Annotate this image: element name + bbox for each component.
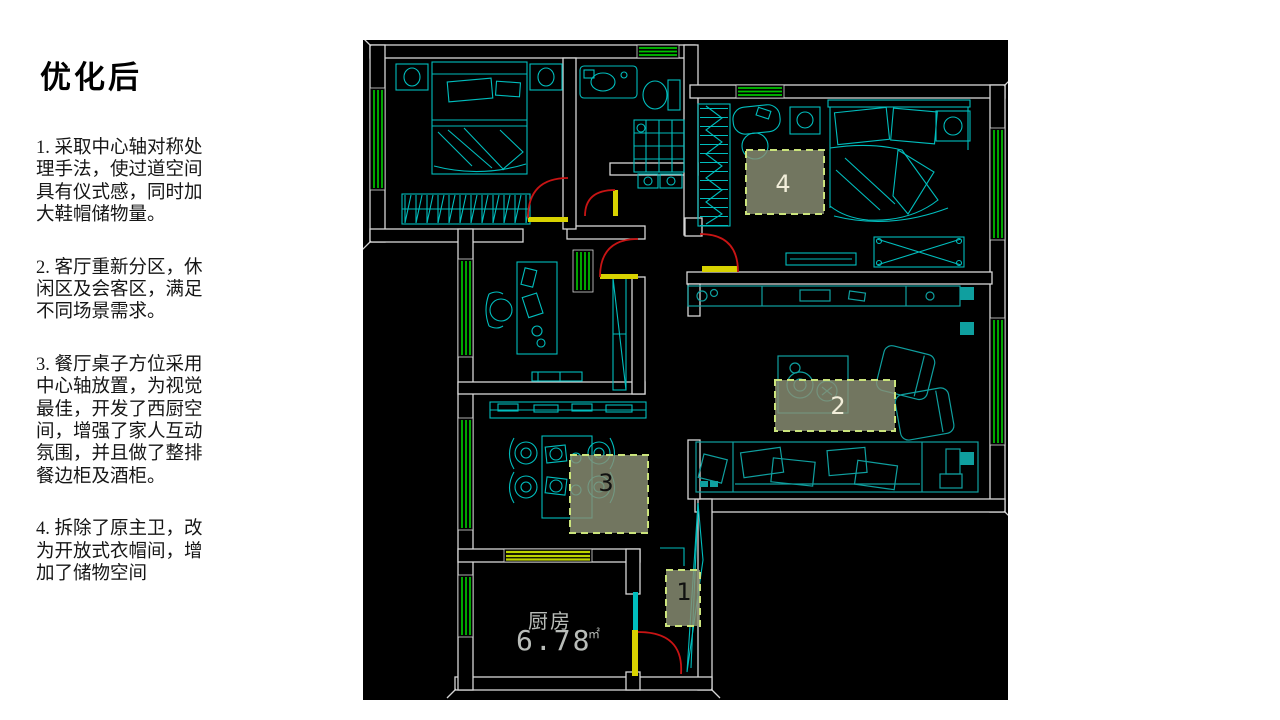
door-master-bedroom: [700, 234, 738, 272]
desk-chair: [486, 292, 512, 328]
box-label-4: 4: [775, 170, 790, 198]
dining-chair: [510, 472, 538, 503]
highlight-box-3: 3: [570, 455, 648, 533]
notes-panel: 优化后 1. 采取中心轴对称处 理手法，使过道空间 具有仪式感，同时加 大鞋帽储…: [36, 52, 248, 616]
box-label-3: 3: [598, 469, 613, 497]
sofa: [696, 442, 978, 492]
window-study-left: [458, 259, 473, 357]
window-bathroom-top: [637, 45, 679, 58]
floor-plan: 厨房 6.78 ㎡: [363, 40, 1008, 700]
nightstand: [790, 107, 820, 134]
window-living-right: [990, 318, 1005, 445]
washbasin: [580, 66, 637, 98]
box-label-1: 1: [676, 578, 691, 606]
window-bedroom1-left: [370, 88, 385, 190]
kitchen-area-unit: ㎡: [588, 627, 600, 641]
wardrobe: [402, 194, 530, 224]
desk: [517, 262, 557, 354]
slide: 优化后 1. 采取中心轴对称处 理手法，使过道空间 具有仪式感，同时加 大鞋帽储…: [0, 0, 1280, 720]
nightstand: [936, 111, 970, 141]
bed: [432, 62, 527, 174]
window-master-right: [990, 128, 1005, 240]
window-master-top: [736, 85, 784, 98]
bedroom1-furniture: [396, 62, 562, 224]
kitchen-area-value: 6.78: [516, 624, 591, 657]
bookshelf: [613, 278, 626, 390]
toilet: [643, 80, 680, 110]
column-marker: [960, 452, 974, 465]
armchair: [894, 387, 955, 442]
tv: [800, 290, 830, 301]
highlight-box-2: 2: [775, 380, 895, 431]
door-bathroom: [585, 190, 618, 216]
tv-cabinet: [688, 286, 960, 306]
note-item-1: 1. 采取中心轴对称处 理手法，使过道空间 具有仪式感，同时加 大鞋帽储物量。: [36, 137, 248, 227]
column-marker: [960, 287, 974, 300]
hallway-storage-cabinet: [573, 250, 593, 292]
laundry: [638, 174, 682, 188]
door-bedroom1: [528, 178, 568, 222]
study-furniture: [486, 262, 626, 390]
rug: [786, 253, 856, 265]
highlight-box-1: 1: [666, 570, 700, 626]
sideboard: [490, 402, 646, 418]
note-item-4: 4. 拆除了原主卫，改 为开放式衣帽间，增 加了储物空间: [36, 518, 248, 585]
column-marker: [960, 322, 974, 335]
cloakroom-wardrobe: [698, 104, 730, 226]
note-item-2: 2. 客厅重新分区，休 闲区及会客区，满足 不同场景需求。: [36, 257, 248, 324]
highlight-box-4: 4: [746, 150, 824, 214]
note-item-3: 3. 餐厅桌子方位采用 中心轴放置，为视觉 最佳，开发了西厨空 间，增强了家人互…: [36, 354, 248, 488]
lamp: [946, 449, 960, 474]
dining-chair: [510, 438, 538, 469]
box-label-2: 2: [830, 392, 845, 420]
wall-shelf: [532, 372, 582, 381]
window-kitchen-left: [458, 575, 473, 637]
door-study: [600, 239, 638, 279]
bed-end-bench: [874, 237, 964, 267]
window-dining-left: [458, 418, 473, 530]
page-title: 优化后: [40, 52, 248, 97]
floor-plan-svg: 厨房 6.78 ㎡: [363, 40, 1008, 700]
kitchen-pass-through-window: [504, 549, 592, 562]
side-table: [698, 454, 727, 483]
